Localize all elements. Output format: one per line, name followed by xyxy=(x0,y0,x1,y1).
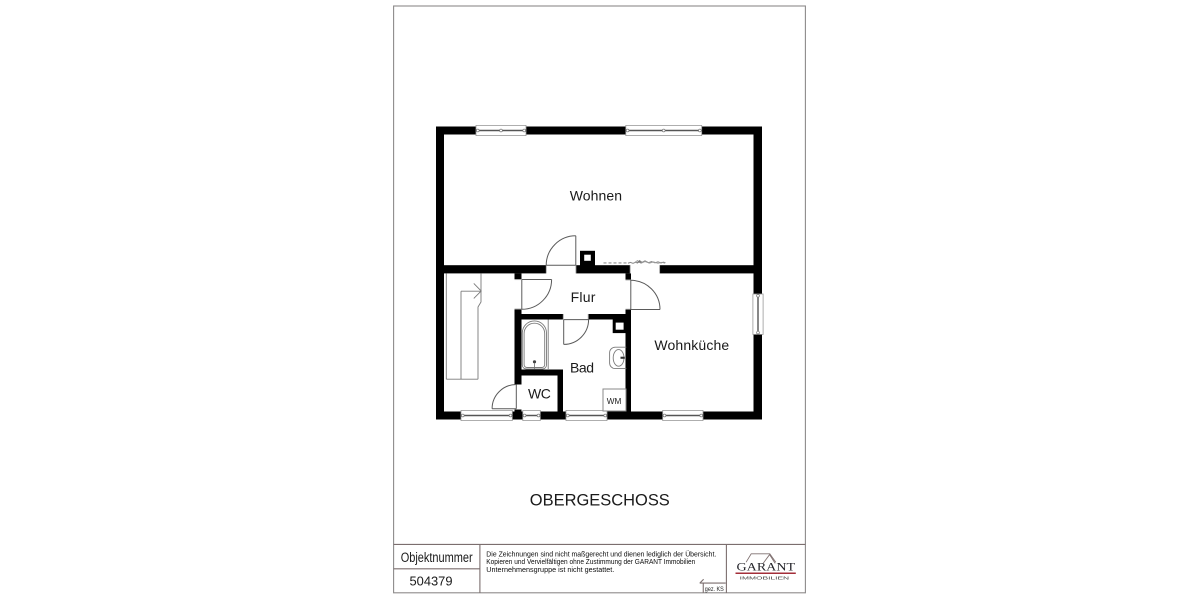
svg-text:504379: 504379 xyxy=(410,574,453,589)
svg-text:gez. KS: gez. KS xyxy=(705,587,724,593)
svg-text:Wohnen: Wohnen xyxy=(570,188,622,204)
svg-text:IMMOBILIEN: IMMOBILIEN xyxy=(740,576,790,581)
svg-text:GARANT: GARANT xyxy=(737,562,796,574)
svg-text:Wohnküche: Wohnküche xyxy=(654,337,729,353)
svg-text:Unternehmensgruppe ist nicht g: Unternehmensgruppe ist nicht gestattet. xyxy=(486,565,614,574)
svg-text:WC: WC xyxy=(528,386,551,402)
svg-text:Bad: Bad xyxy=(570,359,594,375)
svg-text:OBERGESCHOSS: OBERGESCHOSS xyxy=(530,490,670,509)
svg-text:Flur: Flur xyxy=(571,289,596,305)
svg-text:Objektnummer: Objektnummer xyxy=(401,550,473,565)
svg-text:WM: WM xyxy=(607,397,622,406)
